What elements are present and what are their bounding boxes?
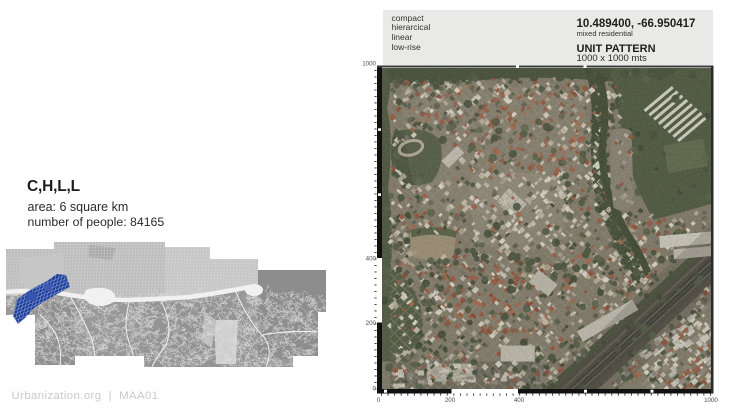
svg-text:1000: 1000 — [704, 397, 718, 404]
svg-text:0: 0 — [377, 397, 381, 404]
svg-text:200: 200 — [366, 320, 377, 327]
svg-text:400: 400 — [514, 397, 525, 404]
svg-text:1000: 1000 — [362, 61, 376, 68]
svg-text:200: 200 — [445, 397, 456, 404]
svg-text:0: 0 — [373, 386, 377, 393]
svg-text:400: 400 — [366, 256, 377, 263]
